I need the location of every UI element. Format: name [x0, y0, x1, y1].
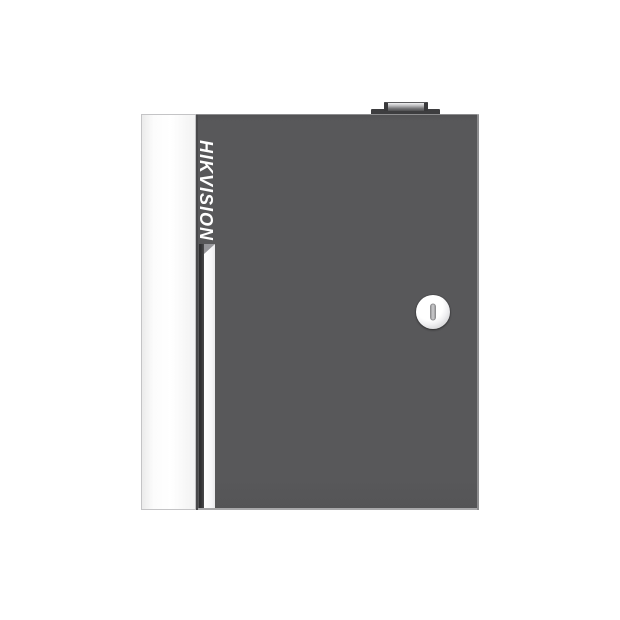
product-photo: HIKVISION — [0, 0, 620, 620]
keyhole-icon — [430, 304, 436, 321]
top-hinge-knob — [384, 102, 428, 111]
enclosure-side-panel — [141, 114, 196, 510]
enclosure-front-door: HIKVISION — [196, 114, 479, 510]
door-groove — [199, 244, 204, 508]
brand-logo: HIKVISION — [198, 140, 213, 245]
door-accent-stripe — [204, 244, 215, 508]
cam-lock — [416, 295, 450, 329]
